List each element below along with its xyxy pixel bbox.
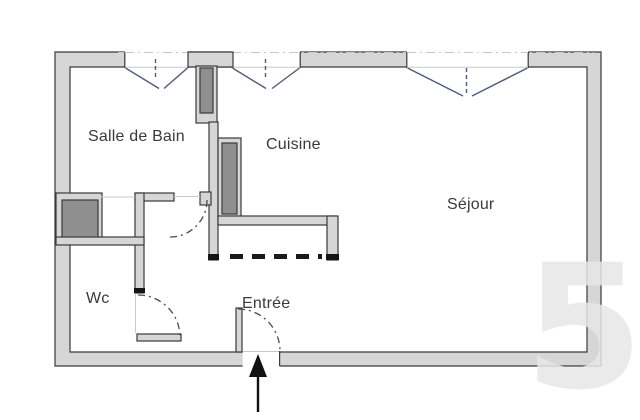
room-label-salle-de-bain: Salle de Bain [88, 128, 185, 146]
door-arc-entrance [238, 309, 280, 351]
floor-plan: Salle de Bain Cuisine Séjour Wc Entrée 5 [0, 0, 640, 420]
entrance-door-leaf [236, 308, 242, 352]
room-label-cuisine: Cuisine [266, 136, 321, 154]
window-sejour [408, 68, 528, 96]
duct-shaft-kitchen [222, 143, 237, 214]
room-label-entree: Entrée [242, 295, 290, 313]
interior-walls [56, 66, 339, 352]
wc-door-leaf [137, 334, 181, 341]
duct-shaft-bathroom [62, 200, 98, 238]
kitchen-counter [218, 216, 336, 225]
watermark: 5 [524, 242, 640, 414]
room-label-sejour: Séjour [447, 196, 494, 214]
door-arc-wc [138, 295, 180, 337]
duct-shaft-top [200, 68, 213, 113]
wall-top-pier [188, 52, 233, 67]
room-label-wc: Wc [86, 290, 110, 308]
